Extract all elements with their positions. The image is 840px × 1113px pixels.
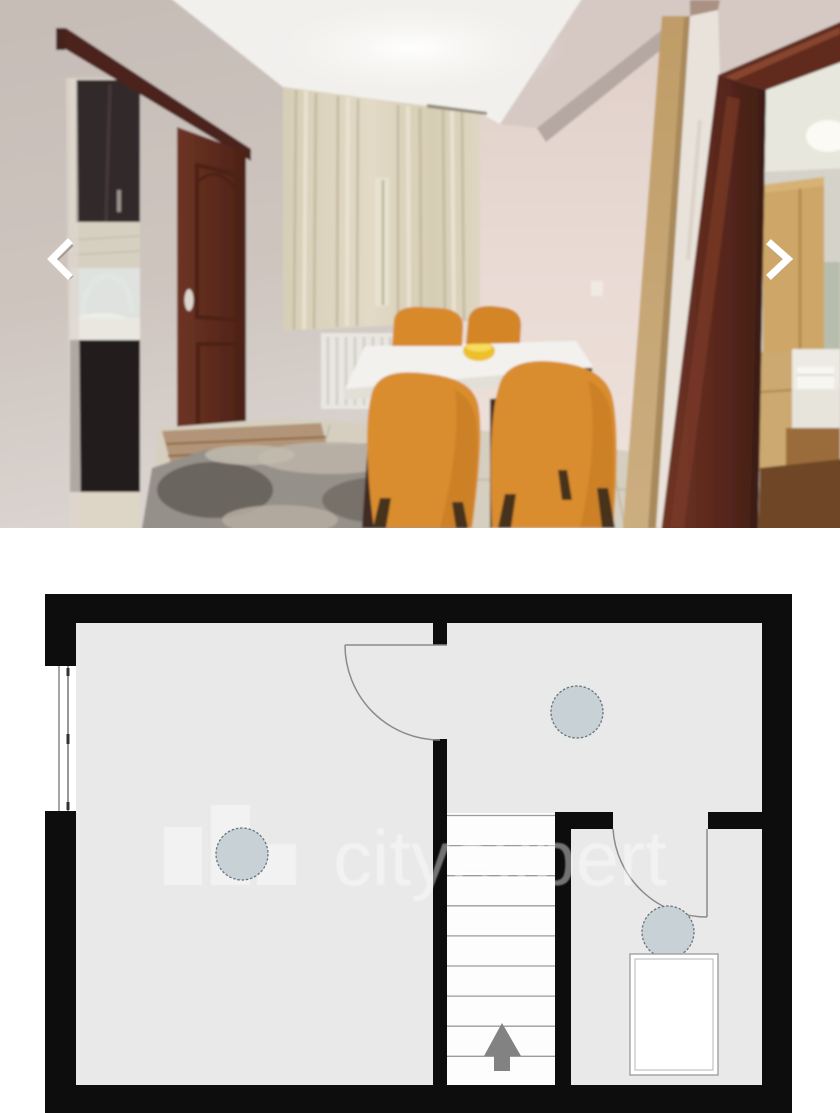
svg-text:cityexpert: cityexpert: [333, 814, 667, 902]
